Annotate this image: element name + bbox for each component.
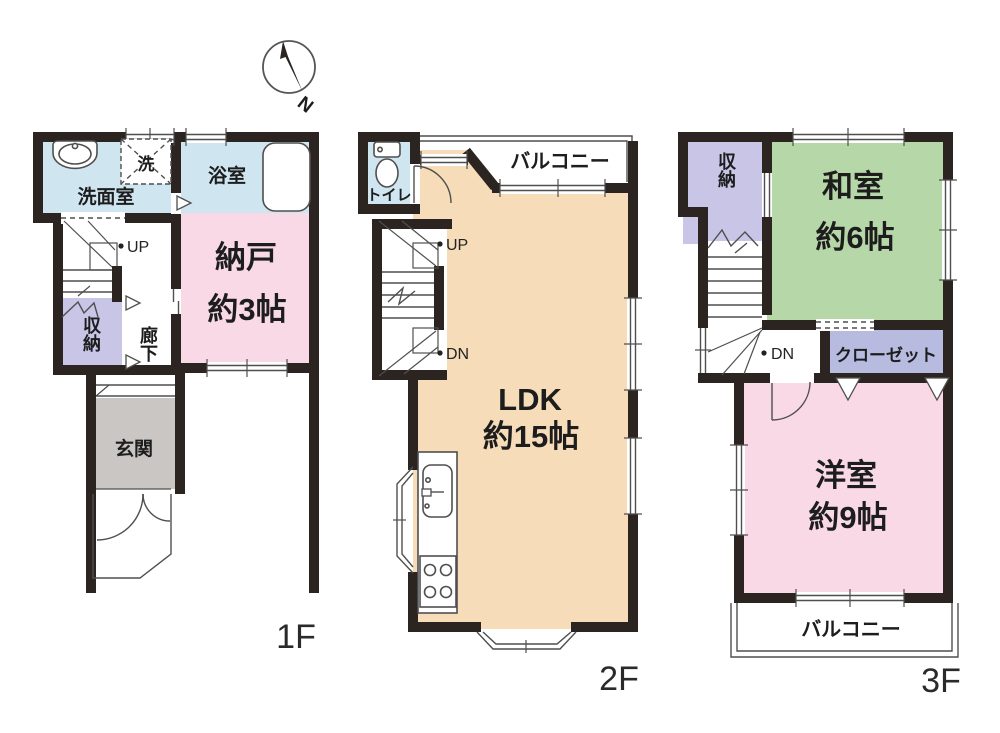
door-mark-closet bbox=[126, 296, 140, 310]
washer-label: 洗 bbox=[138, 154, 155, 174]
balcony-2f-label: バルコニー bbox=[510, 150, 610, 173]
stove-icon bbox=[420, 556, 456, 607]
entrance-door bbox=[97, 494, 170, 540]
bay-window-2f-left bbox=[393, 467, 413, 573]
kitchen-counter bbox=[418, 452, 457, 613]
ldk-name: LDK bbox=[498, 382, 562, 417]
storage-room-size: 約3帖 bbox=[207, 292, 286, 327]
toilet-label: トイレ bbox=[366, 187, 411, 204]
floor-plan-canvas: N bbox=[0, 0, 1000, 733]
compass-north-label: N bbox=[293, 93, 317, 118]
stairs-1f: UP bbox=[63, 221, 149, 302]
stair-wall-2f bbox=[434, 266, 444, 330]
japanese-room-size: 約6帖 bbox=[815, 220, 894, 255]
floor-1f: UP bbox=[33, 128, 319, 656]
floor-3f: DN 収納 和室 約6帖 クローゼット 洋室 約9帖 バルコニー 3F bbox=[678, 128, 961, 700]
opening-washroom-door bbox=[61, 212, 125, 224]
kitchen-sink-icon bbox=[422, 465, 452, 517]
opening-japanese-room-dashed bbox=[816, 319, 874, 331]
porch-outline bbox=[93, 494, 171, 578]
closet-3f-label: 収納 bbox=[716, 152, 736, 188]
closet-1f-label: 収納 bbox=[81, 316, 101, 352]
bay-window-2f-bottom bbox=[477, 632, 576, 653]
sink-icon bbox=[53, 141, 97, 168]
western-room-size: 約9帖 bbox=[808, 500, 887, 535]
entrance-label: 玄関 bbox=[115, 437, 153, 460]
washroom-label: 洗面室 bbox=[77, 185, 134, 208]
stairs-down-label-2f: DN bbox=[446, 346, 469, 363]
floor-2f: UP DN bbox=[358, 132, 642, 698]
opening-closet-3f bbox=[762, 173, 772, 217]
floor-label-1f: 1F bbox=[276, 618, 316, 656]
stairs-down-label-3f: DN bbox=[771, 346, 794, 363]
opening-storage-room-door bbox=[171, 289, 181, 314]
balcony-3f-label: バルコニー bbox=[801, 618, 901, 641]
stairs-up-label-2f: UP bbox=[446, 237, 468, 254]
compass-icon: N bbox=[263, 41, 317, 118]
stairs-up-label-1f: UP bbox=[127, 239, 149, 256]
room-closet-3f bbox=[683, 132, 772, 244]
japanese-room-name: 和室 bbox=[822, 169, 884, 204]
bathroom-label: 浴室 bbox=[208, 164, 246, 187]
bathtub-icon bbox=[263, 143, 310, 211]
wardrobe-label: クローゼット bbox=[835, 345, 937, 365]
floor-label-2f: 2F bbox=[599, 660, 639, 698]
stairwell-3f bbox=[703, 241, 767, 376]
western-room-name: 洋室 bbox=[815, 458, 877, 493]
floor-label-3f: 3F bbox=[921, 662, 961, 700]
toilet-icon bbox=[374, 142, 400, 187]
hallway-label: 廊下 bbox=[138, 325, 158, 363]
floor-plan-svg: N bbox=[0, 0, 1000, 733]
ldk-size: 約15帖 bbox=[483, 419, 579, 454]
storage-room-name: 納戸 bbox=[215, 240, 277, 275]
